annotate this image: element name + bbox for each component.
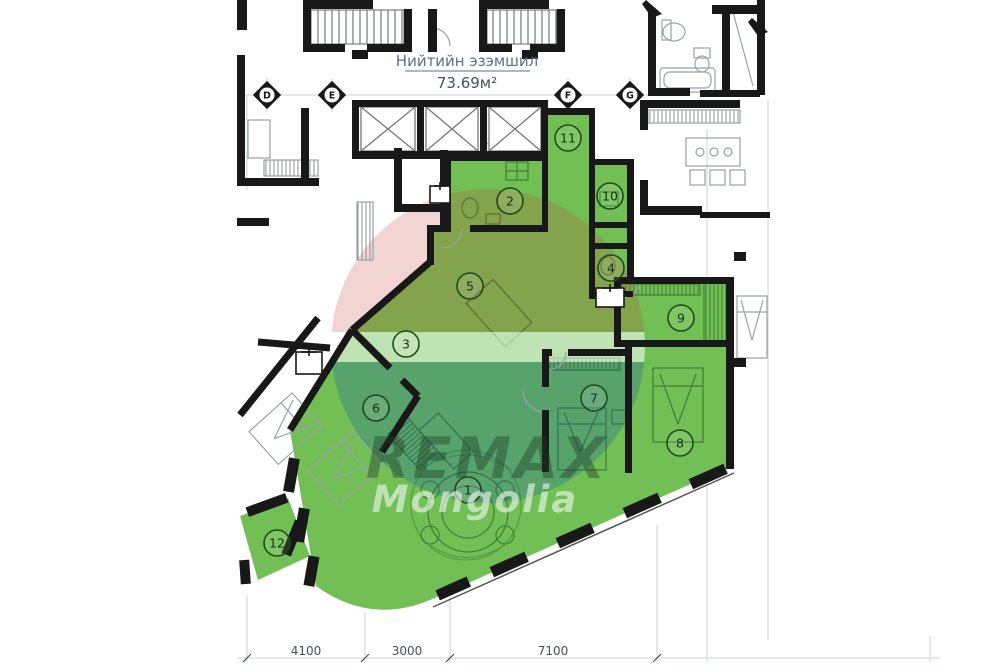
stairs-icon [311,10,404,44]
common-area-label: Нийтийн эзэмшил 73.69м² [396,52,538,92]
room-circle-2: 2 [497,188,523,214]
room-circle-11: 11 [555,125,581,151]
room-circle-8: 8 [667,430,693,456]
room-circle-10: 10 [597,183,623,209]
watermark-mongolia: Mongolia [372,478,579,521]
dimension-3000: 3000 [392,644,423,658]
svg-text:11: 11 [560,131,576,146]
bed-icon [737,296,767,358]
svg-text:9: 9 [677,311,685,326]
grid-marker-g: G [616,81,644,109]
svg-text:D: D [263,91,271,102]
stairs-icon [487,10,557,44]
svg-text:F: F [565,91,572,102]
svg-text:7: 7 [590,391,598,406]
room-circle-3: 3 [393,331,419,357]
room-circle-12: 12 [264,530,290,556]
cabinet-icon [248,120,270,158]
svg-text:12: 12 [269,536,285,551]
kitchen-counter-icon [357,202,373,260]
svg-text:G: G [626,91,634,102]
svg-text:E: E [329,91,336,102]
dining-table-icon [686,138,745,185]
svg-text:6: 6 [372,401,380,416]
dimension-labels: 4100 3000 7100 [243,644,661,662]
watermark-text: REMAX Mongolia [366,426,609,521]
svg-text:2: 2 [506,194,514,209]
floor-plan-image: D E F G 1 2 3 4 5 6 7 8 9 10 11 12 [0,0,1000,667]
dimension-7100: 7100 [538,644,569,658]
wardrobe-icon [704,283,728,341]
fixture-box-icon [596,284,624,307]
svg-text:8: 8 [676,436,684,451]
svg-text:5: 5 [466,279,474,294]
room-circle-5: 5 [457,273,483,299]
room-circle-4: 4 [598,255,624,281]
kitchen-counter-icon [648,110,740,123]
grid-marker-e: E [318,81,346,109]
page-title: Нийтийн эзэмшил [396,52,538,70]
dimension-4100: 4100 [291,644,322,658]
grid-marker-f: F [554,81,582,109]
elevator-icons [361,107,541,151]
sink-icon [663,23,685,41]
floor-plan-svg: D E F G 1 2 3 4 5 6 7 8 9 10 11 12 [0,0,1000,667]
room-circle-7: 7 [581,385,607,411]
area-value: 73.69м² [437,74,497,92]
fixture-box-icon [296,347,322,374]
svg-text:10: 10 [602,189,618,204]
room-circle-9: 9 [668,305,694,331]
grid-marker-d: D [253,81,281,109]
room-circle-6: 6 [363,395,389,421]
svg-text:4: 4 [607,261,615,276]
svg-text:3: 3 [402,337,410,352]
kitchen-counter-icon [264,160,318,176]
